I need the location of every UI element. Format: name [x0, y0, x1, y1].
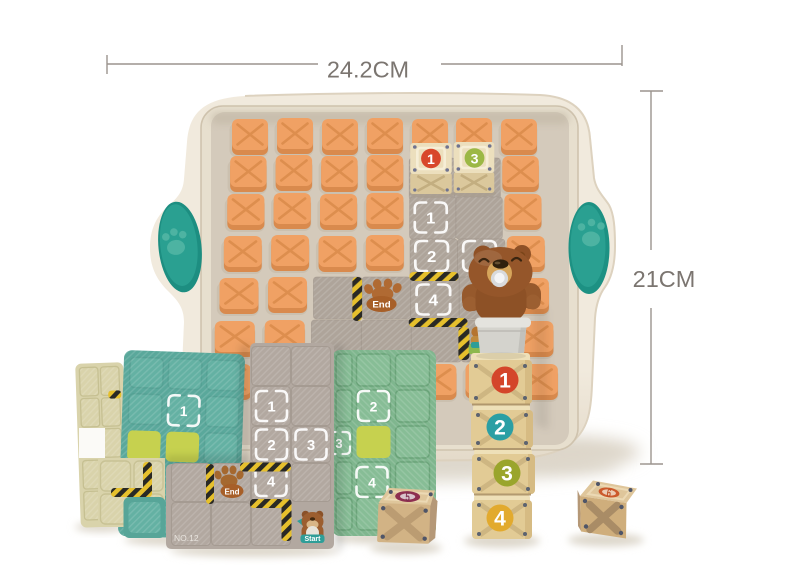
- svg-text:2: 2: [494, 417, 506, 440]
- svg-text:21CM: 21CM: [633, 266, 696, 292]
- svg-text:1: 1: [180, 403, 189, 419]
- svg-text:1: 1: [426, 210, 435, 228]
- svg-text:2: 2: [370, 399, 378, 415]
- svg-text:End: End: [224, 488, 239, 497]
- svg-text:2: 2: [267, 437, 275, 454]
- svg-text:24.2CM: 24.2CM: [327, 57, 409, 83]
- svg-text:4: 4: [494, 508, 506, 531]
- svg-text:NO.12: NO.12: [174, 533, 199, 543]
- svg-text:4: 4: [429, 291, 439, 309]
- svg-text:End: End: [372, 300, 391, 310]
- svg-text:Start: Start: [305, 536, 322, 543]
- svg-text:1: 1: [267, 399, 275, 416]
- svg-text:3: 3: [307, 437, 315, 454]
- svg-text:4: 4: [267, 474, 276, 491]
- svg-text:3: 3: [471, 151, 479, 167]
- svg-text:5: 5: [405, 491, 410, 504]
- svg-text:2: 2: [427, 248, 436, 266]
- svg-text:4: 4: [368, 475, 376, 491]
- svg-text:3: 3: [501, 463, 513, 486]
- svg-text:1: 1: [427, 151, 435, 167]
- svg-text:1: 1: [499, 370, 511, 393]
